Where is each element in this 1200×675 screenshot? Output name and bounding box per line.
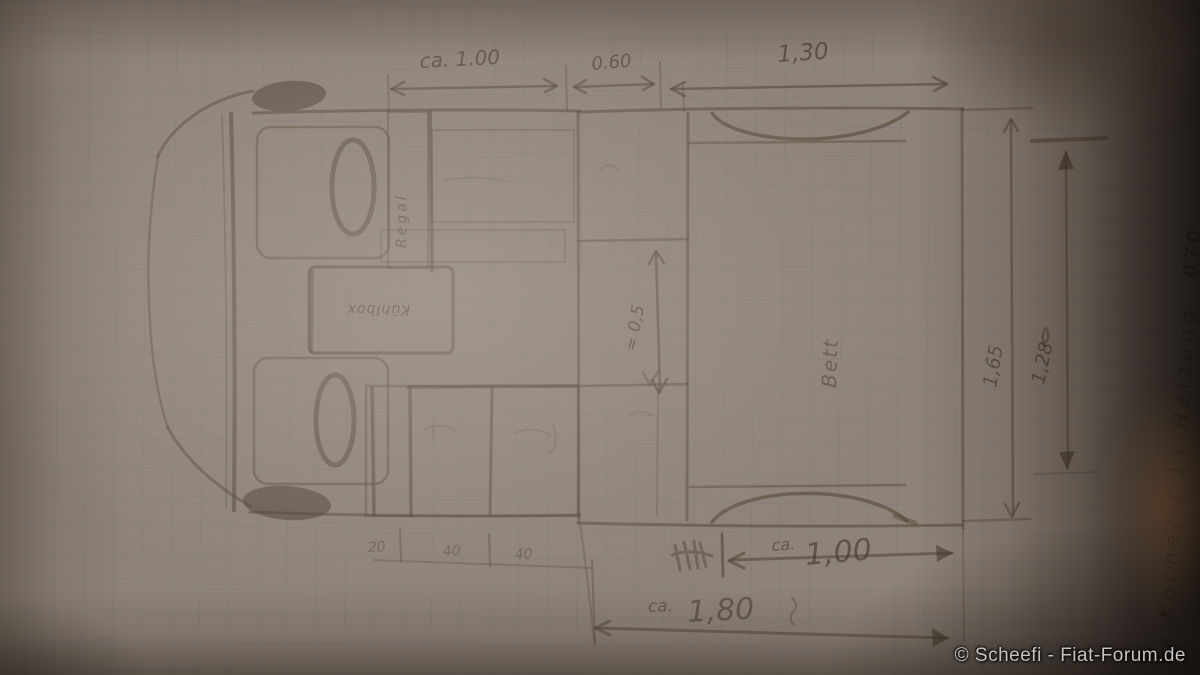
dim-right-outer-label: 1,65: [979, 344, 1007, 389]
dim-bottom-width-prefix: ca.: [771, 534, 796, 555]
dim-top-right-label: 1,30: [777, 38, 830, 68]
segment-3-label: 40: [514, 546, 533, 563]
bench-block: [366, 386, 578, 516]
segment-numbers: 20 40 40: [367, 528, 592, 568]
dim-bottom-total-prefix: ca.: [647, 596, 673, 617]
bett-label: Bett: [817, 338, 843, 389]
pencil-sketch: Kühlbox Regal: [0, 0, 1200, 675]
dim-bottom-total-value: 1,80: [687, 592, 756, 630]
mid-partition: [578, 112, 688, 640]
segment-2-label: 40: [442, 543, 461, 560]
segment-1-label: 20: [367, 539, 386, 556]
margin-notes: 1x Kocher / 1x Heizung 070: [1151, 18, 1200, 668]
dimension-top-right: 1,30: [671, 38, 947, 96]
passenger-seat: [254, 358, 388, 484]
equipment-note: 1x Kocher / 1x Heizung: [1151, 304, 1200, 668]
driver-seat: [257, 127, 389, 258]
dimension-top-middle: 0.60: [574, 51, 684, 112]
dimension-right-outer: 1,65: [963, 108, 1032, 521]
front-wheels: [242, 78, 332, 523]
watermark-text: © Scheefi - Fiat-Forum.de: [955, 645, 1186, 667]
floorplan-photo: Kühlbox Regal: [0, 0, 1200, 675]
kuehlbox-label: Kühlbox: [347, 301, 410, 317]
dim-top-left-label: ca. 1.00: [419, 45, 501, 73]
note-fragment: 070: [1179, 225, 1200, 279]
dimension-right-inner: 1,28: [1027, 138, 1106, 474]
regal-label: Regal: [394, 193, 410, 248]
shelf-unit: Regal: [388, 112, 432, 270]
dimension-top-left: ca. 1.00: [388, 45, 567, 112]
dim-mid-height-label: ≈ 0,5: [621, 303, 649, 352]
dim-top-middle-label: 0.60: [591, 51, 633, 75]
dimension-mid-height: ≈ 0,5: [621, 251, 667, 393]
fridge-box: Kühlbox: [309, 267, 453, 353]
dim-bottom-width-value: 1,00: [804, 532, 874, 573]
dimension-bottom-total: ca. 1,80: [592, 560, 949, 647]
dimension-bottom-width: ca. 1,00: [672, 532, 953, 576]
dim-right-inner-label: 1,28: [1027, 340, 1057, 386]
